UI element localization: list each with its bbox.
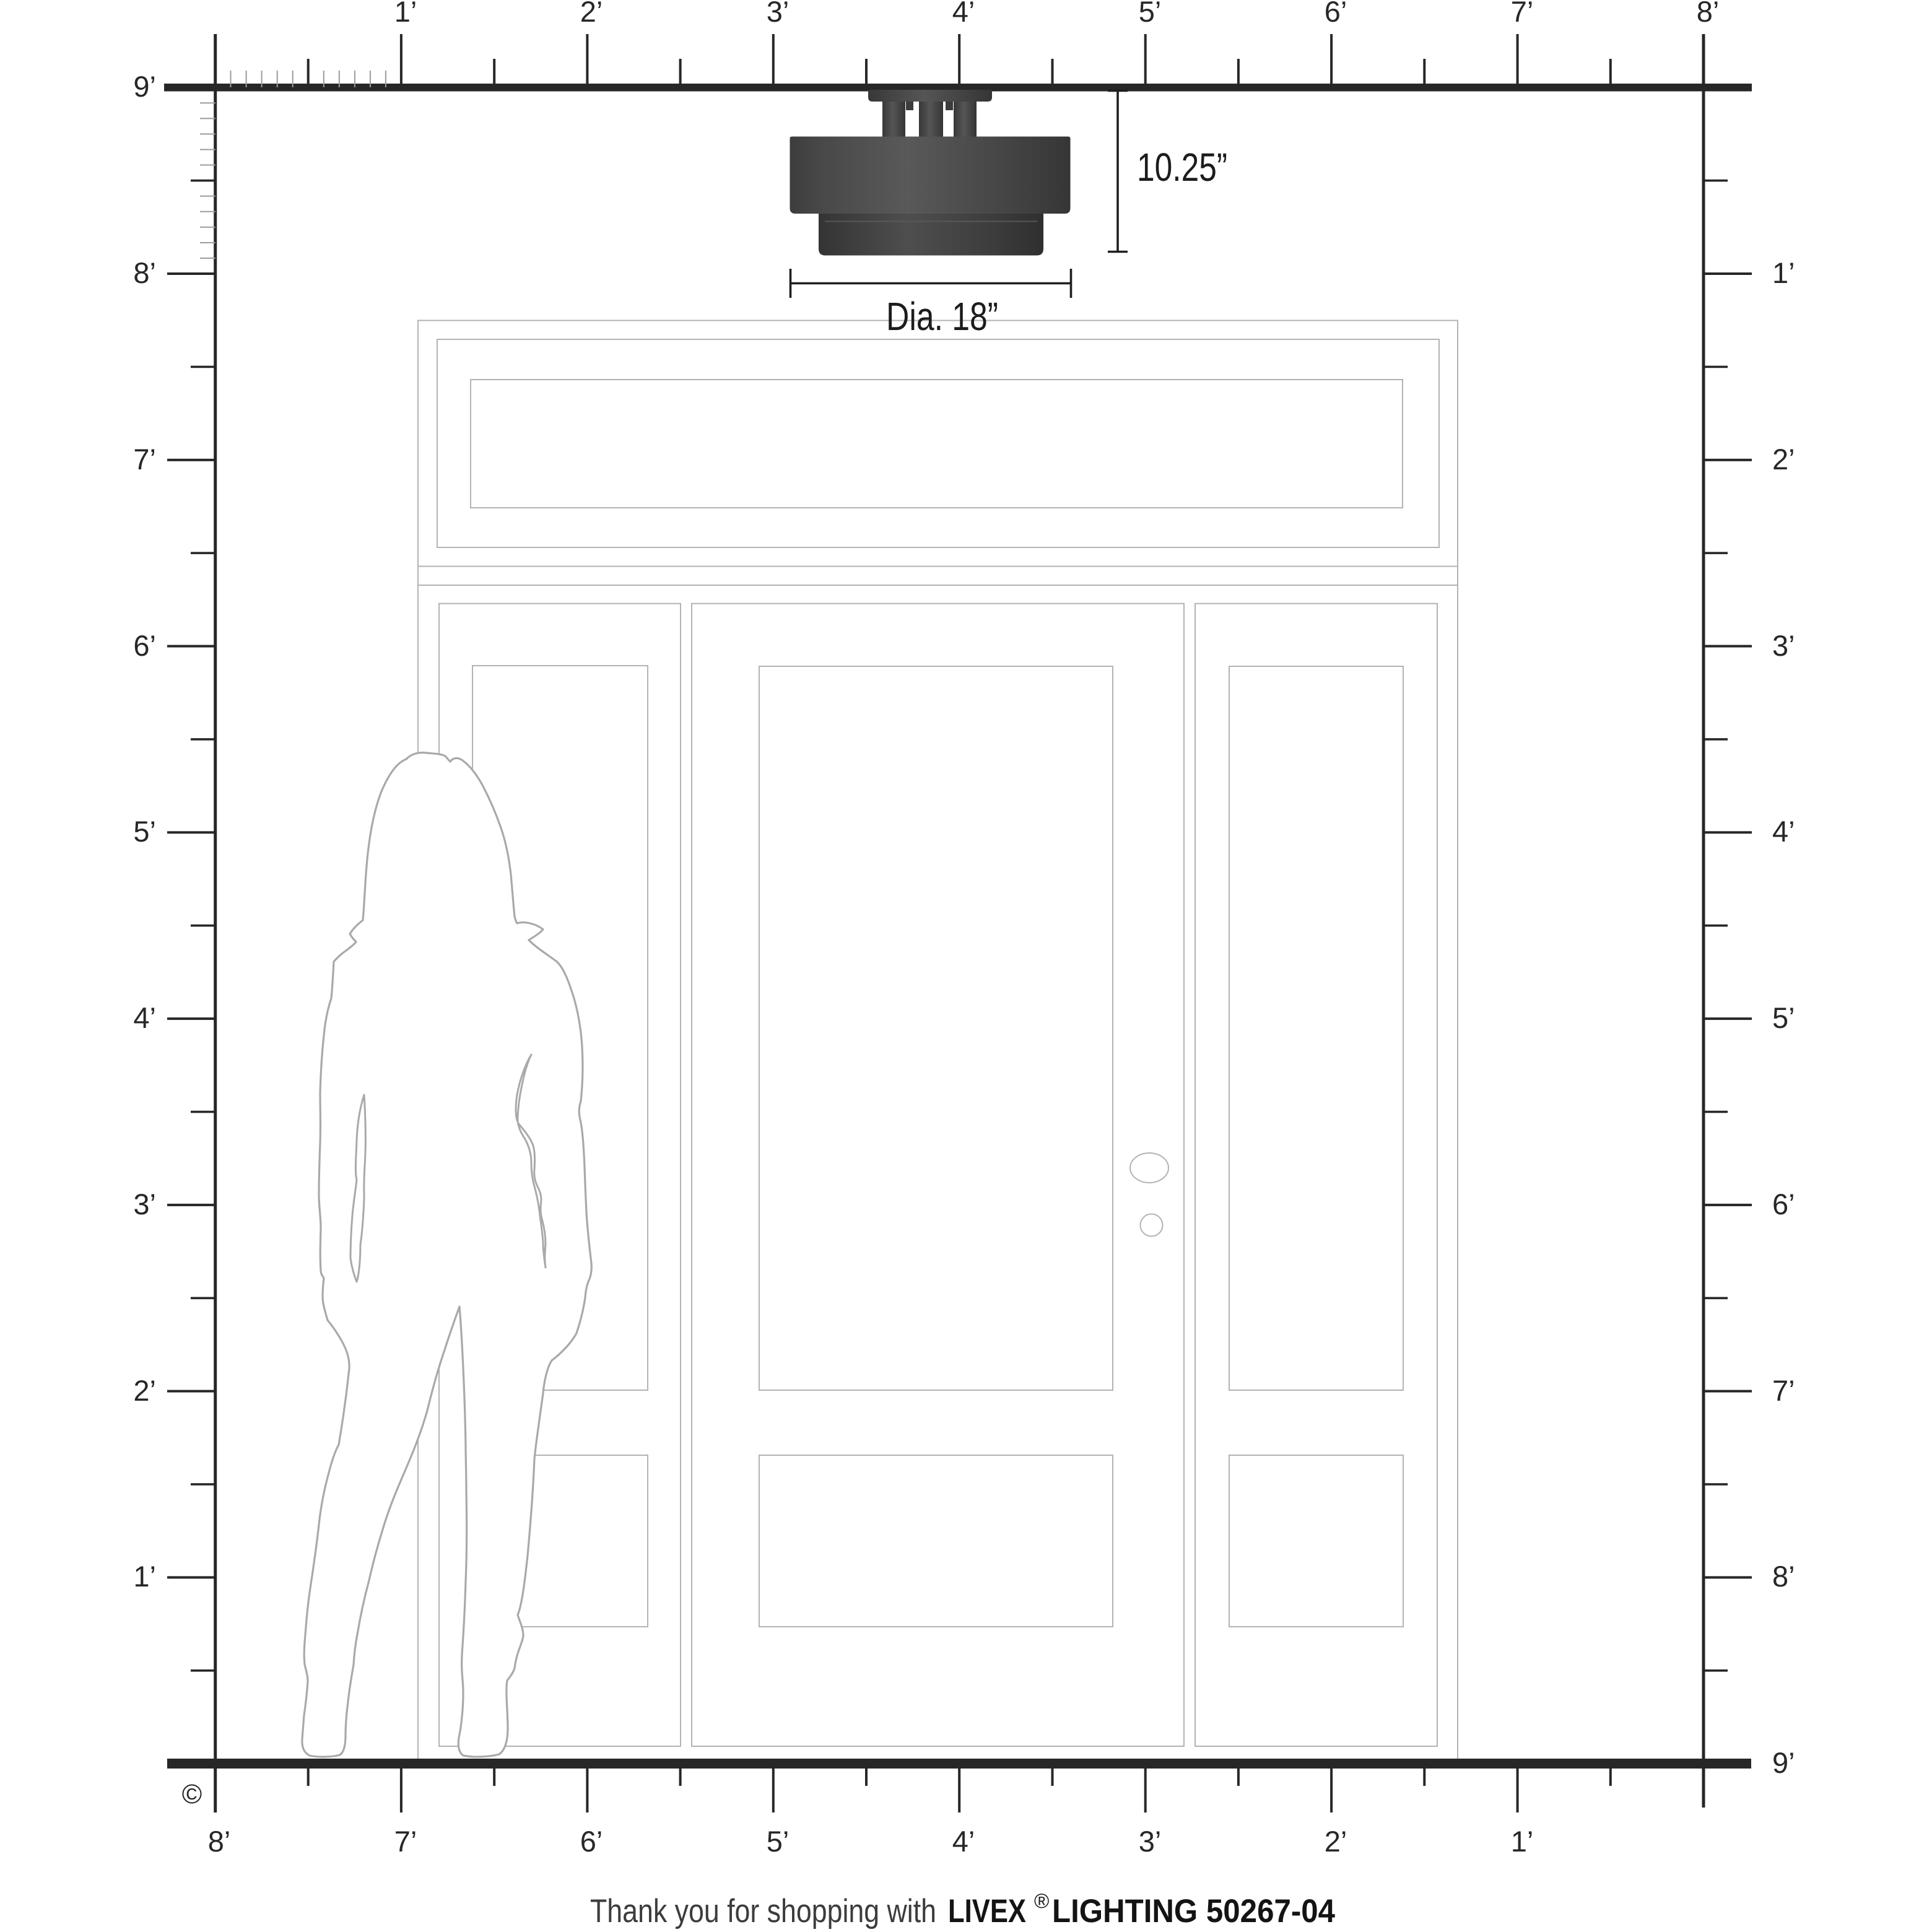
svg-text:9’: 9’ — [1772, 1746, 1795, 1779]
svg-text:3’: 3’ — [1139, 1825, 1162, 1858]
svg-text:8’: 8’ — [208, 1825, 231, 1858]
svg-text:8’: 8’ — [133, 256, 156, 289]
svg-text:2’: 2’ — [580, 0, 603, 28]
svg-text:6’: 6’ — [1325, 0, 1347, 28]
svg-text:©: © — [182, 1779, 202, 1809]
svg-text:Thank you for shopping with: Thank you for shopping with — [590, 1893, 936, 1930]
svg-text:Dia. 18”: Dia. 18” — [886, 294, 998, 339]
svg-text:5’: 5’ — [1772, 1001, 1795, 1034]
svg-text:1’: 1’ — [1511, 1825, 1534, 1858]
svg-text:4’: 4’ — [952, 1825, 975, 1858]
svg-text:LIVEX: LIVEX — [948, 1893, 1026, 1930]
svg-text:7’: 7’ — [394, 1825, 417, 1858]
svg-text:8’: 8’ — [1772, 1560, 1795, 1593]
svg-text:7’: 7’ — [1772, 1374, 1795, 1407]
svg-text:6’: 6’ — [1772, 1188, 1795, 1221]
svg-text:2’: 2’ — [1325, 1825, 1347, 1858]
svg-text:3’: 3’ — [1772, 629, 1795, 662]
svg-text:10.25”: 10.25” — [1137, 145, 1227, 189]
svg-text:7’: 7’ — [1511, 0, 1534, 28]
svg-text:1’: 1’ — [133, 1560, 156, 1593]
svg-text:8’: 8’ — [1697, 0, 1720, 28]
svg-text:3’: 3’ — [767, 0, 790, 28]
svg-text:5’: 5’ — [1139, 0, 1162, 28]
svg-text:1’: 1’ — [1772, 256, 1795, 289]
svg-text:®: ® — [1034, 1889, 1049, 1912]
svg-text:4’: 4’ — [133, 1001, 156, 1034]
svg-text:2’: 2’ — [1772, 443, 1795, 476]
svg-text:1’: 1’ — [394, 0, 417, 28]
svg-text:7’: 7’ — [133, 443, 156, 476]
svg-text:LIGHTING 50267-04: LIGHTING 50267-04 — [1052, 1893, 1335, 1930]
svg-text:4’: 4’ — [1772, 815, 1795, 848]
svg-text:6’: 6’ — [580, 1825, 603, 1858]
svg-text:2’: 2’ — [133, 1374, 156, 1407]
svg-text:6’: 6’ — [133, 629, 156, 662]
svg-text:9’: 9’ — [133, 70, 156, 103]
svg-text:3’: 3’ — [133, 1188, 156, 1221]
svg-text:4’: 4’ — [952, 0, 975, 28]
svg-text:5’: 5’ — [133, 815, 156, 848]
svg-text:5’: 5’ — [767, 1825, 790, 1858]
